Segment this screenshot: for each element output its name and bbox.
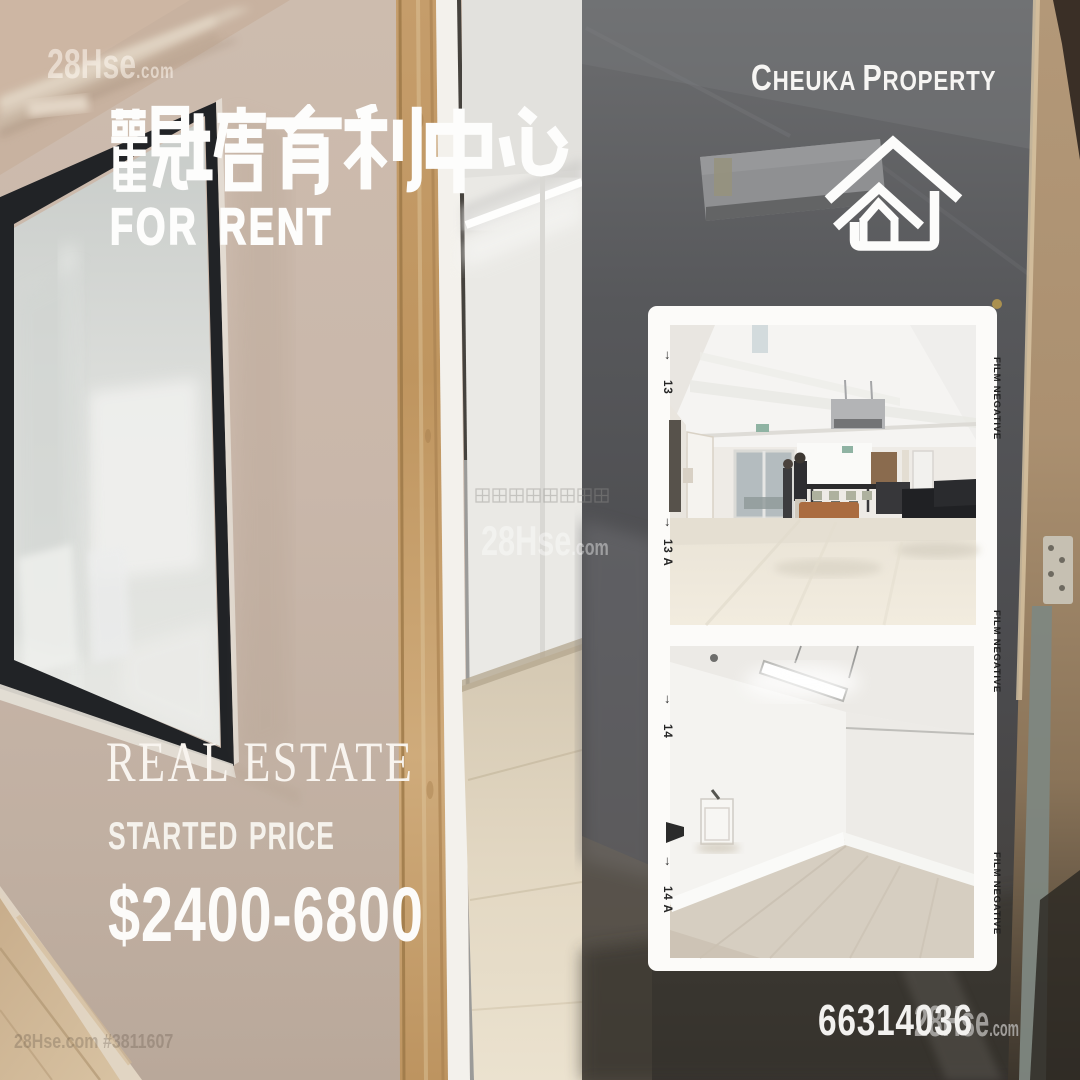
svg-text:FILM NEGATIVE: FILM NEGATIVE bbox=[991, 610, 1002, 693]
svg-text:FILM NEGATIVE: FILM NEGATIVE bbox=[991, 852, 1002, 935]
svg-text:→: → bbox=[662, 855, 677, 869]
svg-text:14: 14 bbox=[661, 724, 673, 739]
svg-text:→: → bbox=[662, 349, 677, 363]
svg-text:13: 13 bbox=[661, 380, 673, 395]
svg-text:→: → bbox=[662, 693, 677, 707]
svg-text:→: → bbox=[662, 516, 677, 530]
svg-text:13 A: 13 A bbox=[661, 539, 673, 567]
svg-text:14 A: 14 A bbox=[661, 886, 673, 914]
svg-text:FILM NEGATIVE: FILM NEGATIVE bbox=[991, 357, 1002, 440]
